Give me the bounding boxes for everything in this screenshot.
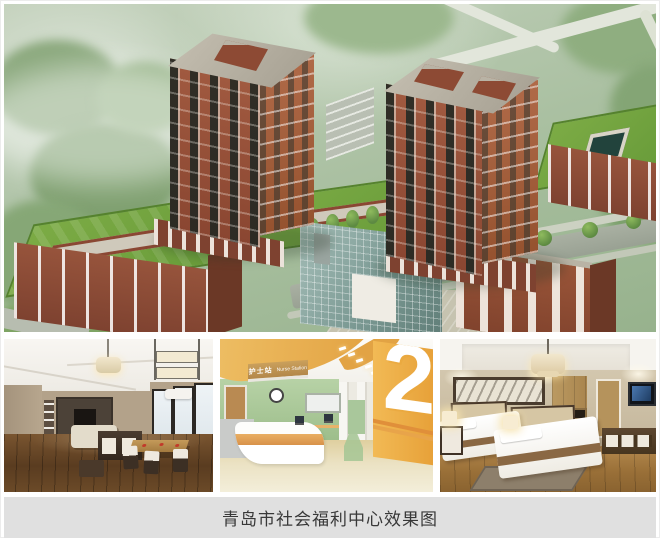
reception-desk	[235, 422, 324, 465]
table-lamp	[442, 411, 457, 425]
table-setting	[175, 444, 180, 447]
bed-runner	[497, 443, 601, 466]
yellow-wall: 2	[373, 341, 433, 466]
tv-screen	[632, 386, 651, 401]
dining-chair	[143, 450, 159, 474]
courtyard-tree	[346, 210, 359, 228]
aerial-rendering-photo	[4, 4, 656, 332]
floor-number: 2	[383, 341, 433, 431]
roof-bulkhead	[472, 76, 516, 101]
nightstand	[440, 426, 463, 454]
sign-text-english: Nurse Station	[276, 365, 306, 373]
wall-clock	[269, 388, 284, 403]
roof-bulkhead	[414, 64, 464, 91]
nurse-station-photo: 2 护士站 Nurse Station	[220, 339, 433, 492]
tv-cabinet	[602, 428, 656, 454]
dining-chair	[173, 449, 188, 472]
corridor-end-wall	[348, 400, 365, 434]
cabinet-door	[102, 438, 116, 454]
street-tree	[582, 222, 598, 238]
pillow	[500, 427, 543, 443]
table-lamp	[503, 416, 518, 430]
figure-page: 2 护士站 Nurse Station	[0, 0, 660, 538]
lamp-shade	[156, 367, 198, 379]
caption-text: 青岛市社会福利中心效果图	[222, 505, 438, 530]
pendant-stem	[547, 339, 549, 354]
table-setting	[143, 444, 148, 447]
sign-text-chinese: 护士站	[248, 365, 272, 377]
drum-pendant-lamp	[96, 357, 121, 372]
desk-monitor	[295, 416, 304, 425]
left-tower-front-facade	[170, 58, 260, 247]
table-setting	[160, 443, 165, 446]
bedroom-photo	[440, 339, 656, 492]
atrium-panel	[352, 274, 396, 323]
forest-blob	[304, 4, 454, 54]
pendant-lamp-tier	[537, 371, 559, 377]
roof-bulkhead	[214, 40, 268, 71]
air-conditioner	[165, 389, 192, 398]
coffee-table	[79, 460, 104, 477]
figure-caption: 青岛市社会福利中心效果图	[4, 497, 656, 538]
street-tree	[536, 230, 552, 246]
parking-lot	[326, 87, 374, 160]
tv	[628, 382, 656, 406]
notice-board	[305, 393, 341, 414]
frame-pendant-lamp	[154, 339, 200, 380]
dining-chair	[122, 446, 138, 470]
desk-base	[235, 445, 324, 465]
interior-photo-row: 2 护士站 Nurse Station	[4, 339, 656, 492]
southeast-wing-side	[590, 259, 616, 332]
desk-monitor	[324, 414, 333, 423]
right-tower-front-facade	[386, 84, 482, 276]
pendant-stem	[107, 339, 109, 357]
desk-orange-stripe	[235, 434, 324, 444]
lamp-shade	[156, 351, 198, 363]
living-room-photo	[4, 339, 213, 492]
shelf-unit	[44, 400, 54, 437]
courtyard-tree	[366, 206, 379, 224]
cabinet-drawers	[606, 435, 651, 447]
